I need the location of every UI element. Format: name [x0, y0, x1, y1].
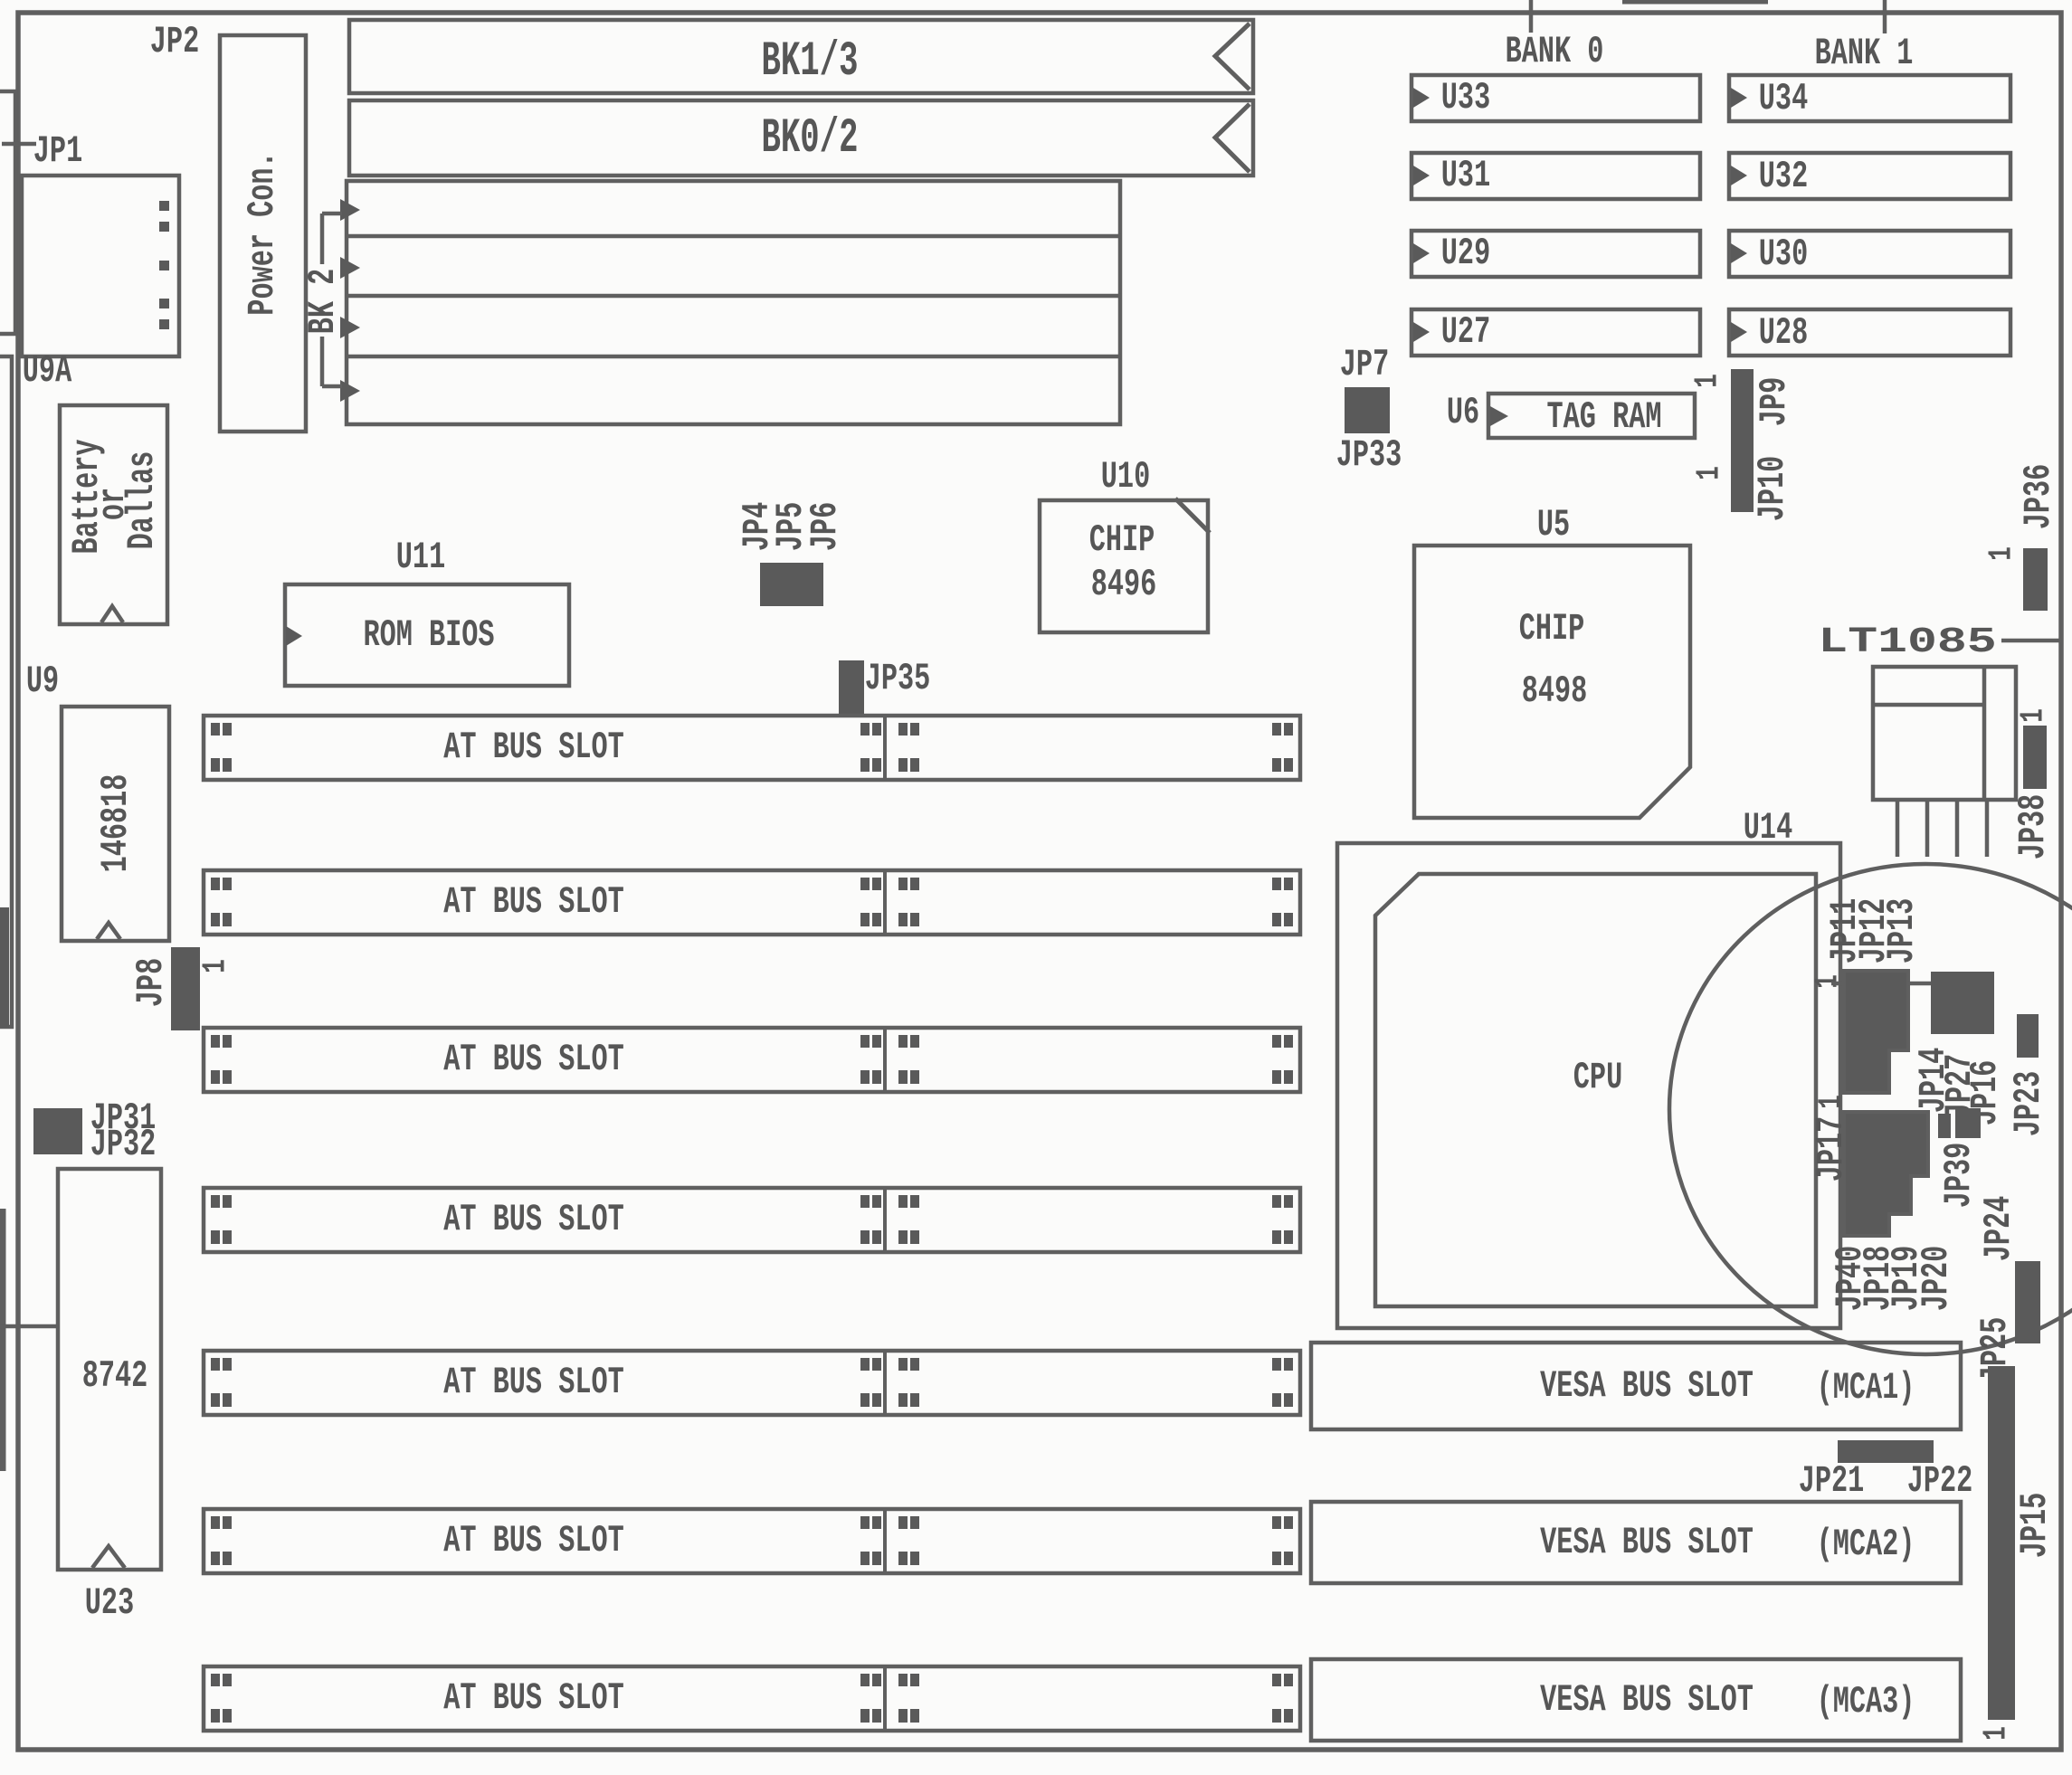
- svg-text:8742: 8742: [82, 1354, 148, 1397]
- svg-text:AT BUS SLOT: AT BUS SLOT: [443, 1361, 624, 1403]
- svg-text:1: 1: [1984, 546, 2020, 561]
- svg-text:AT BUS SLOT: AT BUS SLOT: [443, 880, 624, 923]
- svg-text:JP13: JP13: [1880, 898, 1923, 964]
- svg-text:CHIP: CHIP: [1089, 518, 1155, 561]
- svg-text:U30: U30: [1759, 233, 1808, 275]
- svg-text:JP23: JP23: [2007, 1071, 2049, 1137]
- svg-text:BANK 1: BANK 1: [1815, 32, 1914, 74]
- svg-text:JP6: JP6: [803, 502, 846, 551]
- svg-text:U6: U6: [1447, 391, 1479, 433]
- svg-text:U23: U23: [85, 1581, 134, 1624]
- svg-text:JP38: JP38: [2011, 794, 2054, 860]
- svg-text:BK 2: BK 2: [301, 269, 344, 335]
- svg-text:JP21: JP21: [1799, 1459, 1865, 1502]
- svg-text:AT BUS SLOT: AT BUS SLOT: [443, 1038, 624, 1080]
- svg-text:VESA BUS SLOT: VESA BUS SLOT: [1540, 1678, 1754, 1721]
- svg-text:BANK 0: BANK 0: [1506, 30, 1604, 72]
- svg-text:1: 1: [198, 959, 234, 973]
- svg-text:U33: U33: [1441, 76, 1490, 119]
- svg-text:JP22: JP22: [1907, 1459, 1973, 1502]
- svg-text:BK0/2: BK0/2: [762, 110, 859, 166]
- svg-text:U28: U28: [1759, 311, 1808, 354]
- svg-text:U9: U9: [26, 660, 59, 702]
- svg-text:U29: U29: [1441, 232, 1490, 274]
- svg-text:VESA BUS SLOT: VESA BUS SLOT: [1540, 1521, 1754, 1563]
- svg-text:JP35: JP35: [865, 657, 931, 699]
- svg-text:AT BUS SLOT: AT BUS SLOT: [443, 726, 624, 768]
- svg-text:U11: U11: [396, 536, 445, 578]
- svg-text:1: 1: [1979, 1726, 2015, 1741]
- svg-text:JP10: JP10: [1751, 456, 1793, 522]
- svg-text:U34: U34: [1759, 77, 1808, 119]
- svg-text:JP1: JP1: [33, 129, 82, 172]
- svg-text:JP20: JP20: [1915, 1246, 1957, 1312]
- svg-text:JP7: JP7: [1340, 343, 1389, 385]
- svg-text:U32: U32: [1759, 155, 1808, 197]
- svg-text:LT1085: LT1085: [1818, 622, 1996, 662]
- svg-text:JP2: JP2: [150, 20, 199, 62]
- svg-text:U27: U27: [1441, 310, 1490, 353]
- svg-text:JP15: JP15: [2013, 1493, 2056, 1559]
- svg-text:(MCA1): (MCA1): [1817, 1366, 1915, 1409]
- svg-text:VESA BUS SLOT: VESA BUS SLOT: [1540, 1364, 1754, 1407]
- svg-text:JP39: JP39: [1937, 1143, 1980, 1209]
- svg-text:(MCA2): (MCA2): [1817, 1523, 1915, 1565]
- svg-text:8496: 8496: [1091, 563, 1157, 605]
- svg-text:(MCA3): (MCA3): [1817, 1680, 1915, 1723]
- svg-text:JP8: JP8: [129, 958, 172, 1007]
- svg-text:1: 1: [1690, 374, 1726, 388]
- svg-text:Power Con.: Power Con.: [241, 151, 283, 315]
- svg-text:ROM BIOS: ROM BIOS: [363, 613, 494, 656]
- svg-text:U9A: U9A: [23, 349, 71, 392]
- svg-text:1: 1: [1692, 466, 1728, 480]
- svg-text:JP36: JP36: [2017, 464, 2059, 530]
- svg-text:8498: 8498: [1522, 669, 1588, 712]
- svg-text:JP24: JP24: [1977, 1196, 2020, 1262]
- svg-text:JP32: JP32: [90, 1123, 157, 1165]
- svg-text:AT BUS SLOT: AT BUS SLOT: [443, 1198, 624, 1240]
- svg-text:Dallas: Dallas: [120, 451, 163, 550]
- svg-text:1: 1: [1814, 1095, 1850, 1109]
- svg-text:JP9: JP9: [1753, 377, 1795, 426]
- svg-text:U31: U31: [1441, 154, 1490, 196]
- svg-text:JP33: JP33: [1336, 433, 1402, 476]
- svg-text:U10: U10: [1101, 455, 1150, 498]
- svg-text:AT BUS SLOT: AT BUS SLOT: [443, 1519, 624, 1561]
- svg-text:CPU: CPU: [1573, 1056, 1622, 1098]
- svg-text:AT BUS SLOT: AT BUS SLOT: [443, 1676, 624, 1719]
- svg-text:CHIP: CHIP: [1519, 607, 1585, 650]
- svg-text:TAG RAM: TAG RAM: [1547, 395, 1662, 438]
- svg-text:U5: U5: [1537, 503, 1570, 546]
- svg-text:BK1/3: BK1/3: [762, 33, 859, 89]
- svg-text:146818: 146818: [94, 774, 137, 873]
- svg-text:1: 1: [2016, 708, 2052, 723]
